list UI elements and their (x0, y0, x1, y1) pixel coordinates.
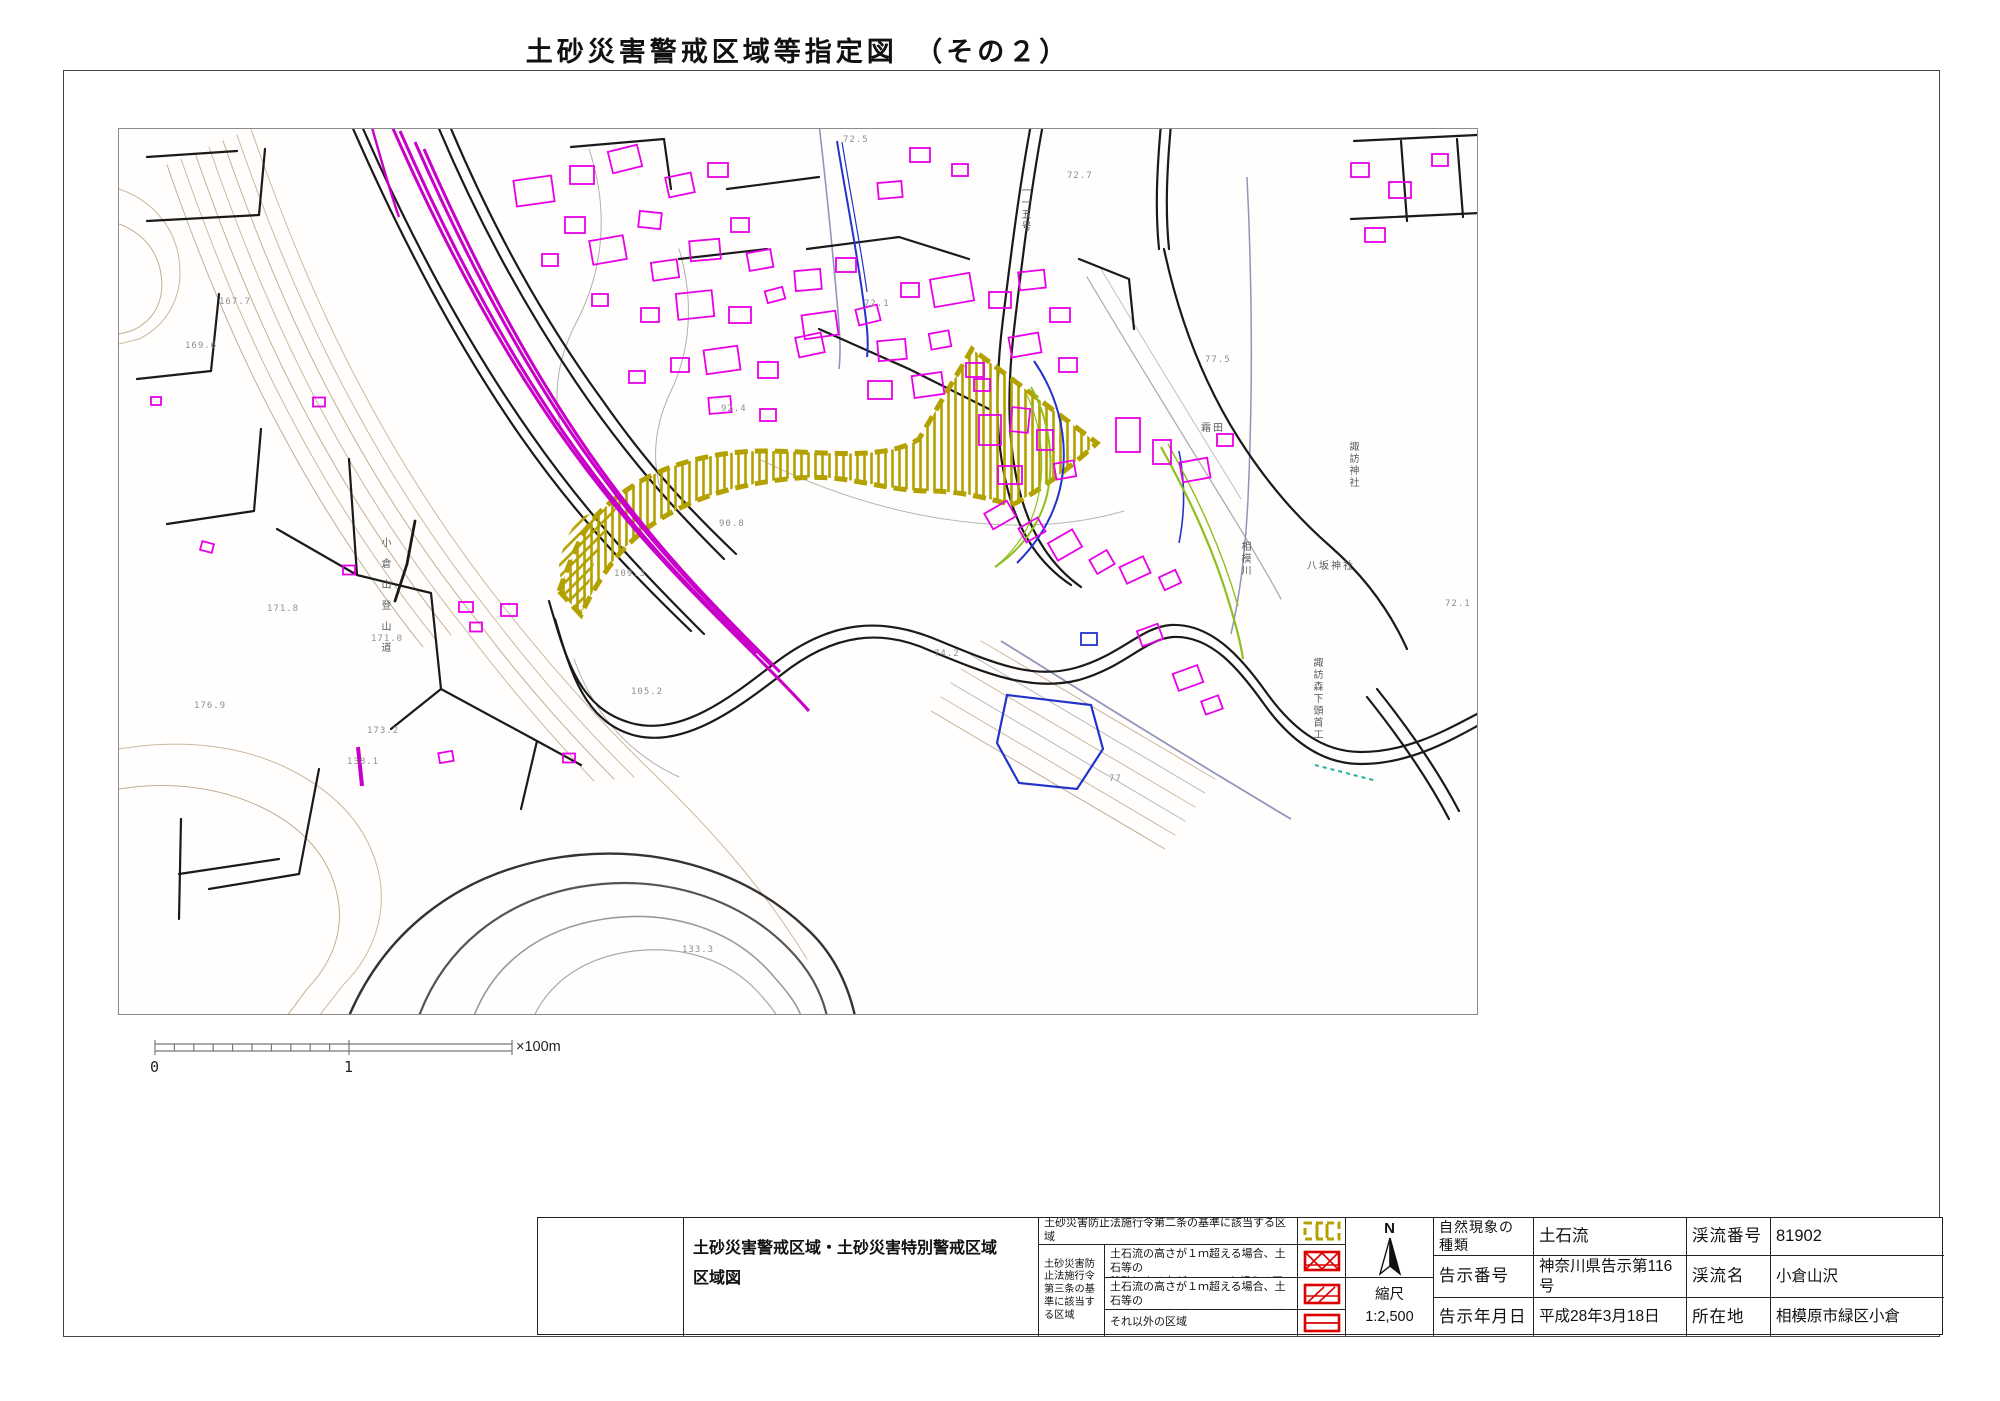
legend-row2-line1: 土石流の高さが１ｍ超える場合、土石等の (1110, 1248, 1292, 1276)
legend-row3-line1: 土石流の高さが１ｍ超える場合、土石等の (1110, 1281, 1292, 1309)
scale-bar: 0 1 ×100m (150, 1036, 630, 1082)
building (1351, 163, 1369, 177)
building (1089, 550, 1114, 574)
building (641, 308, 659, 322)
map-label: 諏訪神社 (1345, 441, 1360, 489)
phenomenon-type-value: 土石流 (1534, 1218, 1687, 1256)
map-doc-title-line2: 区域図 (693, 1264, 1033, 1294)
legend-row4-text: それ以外の区域 (1105, 1310, 1298, 1336)
diagonal-hatch-icon (1302, 1282, 1342, 1306)
building (989, 292, 1011, 308)
special-area-diagonal-swatch (1298, 1278, 1346, 1310)
building (868, 381, 892, 399)
building (570, 166, 594, 184)
map-label: 諏訪森下頭首工 (1309, 657, 1324, 741)
map-label: 105.2 (631, 687, 663, 697)
building (592, 294, 608, 306)
crosshatch-icon (1302, 1249, 1342, 1273)
notice-number-label: 告示番号 (1434, 1256, 1534, 1298)
north-arrow: N (1346, 1218, 1434, 1278)
map-label: 72.1 (864, 299, 890, 309)
map-label: 90.8 (719, 519, 745, 529)
map-doc-title-cell: 土砂災害警戒区域・土砂災害特別警戒区域 区域図 (684, 1218, 1039, 1336)
map-label: 169.6 (185, 341, 217, 351)
building (952, 164, 968, 176)
building (1119, 556, 1150, 583)
building (703, 346, 740, 374)
north-label: N (1384, 1221, 1395, 1236)
map-label: 72.7 (1067, 171, 1093, 181)
legend-group-label: 土砂災害防止法施行令第三条の基準に該当する区域 (1039, 1245, 1105, 1336)
building (910, 148, 930, 162)
notice-date-value: 平成28年3月18日 (1534, 1298, 1687, 1336)
building (151, 397, 161, 405)
map-label: 72.1 (1445, 599, 1471, 609)
building (1217, 434, 1233, 446)
building (1159, 570, 1181, 590)
map-scale-cell: 縮尺 1:2,500 (1346, 1278, 1434, 1336)
building (760, 409, 776, 421)
building (1050, 308, 1070, 322)
contour-lines (119, 129, 1281, 1015)
building (200, 541, 214, 553)
building (651, 259, 679, 280)
building (729, 307, 751, 323)
building (676, 290, 715, 320)
building (629, 371, 645, 383)
stream-name-label: 渓流名 (1687, 1256, 1771, 1298)
scale-one-label: 1 (344, 1058, 353, 1076)
horizontal-line-icon (1302, 1312, 1342, 1334)
scale-unit-label: ×100m (516, 1039, 561, 1055)
building (1179, 458, 1210, 483)
building (1173, 665, 1204, 691)
map-label: 77 (1109, 774, 1122, 784)
legend-row1-text: 土砂災害防止法施行令第二条の基準に該当する区域 (1039, 1218, 1298, 1245)
map-sheet-page: 土砂災害警戒区域等指定図 （その２） (0, 0, 2000, 1401)
special-area-crosshatch-swatch (1298, 1245, 1346, 1278)
location-label: 所在地 (1687, 1298, 1771, 1336)
building (930, 273, 974, 308)
building (671, 358, 689, 372)
road-network (137, 129, 1478, 919)
building (438, 751, 454, 763)
map-label: 176.9 (194, 701, 226, 711)
map-scale-label: 縮尺 (1375, 1285, 1404, 1307)
map-label: 一一五号 (1017, 185, 1032, 233)
map-label: 八坂神社 (1307, 557, 1355, 572)
warning-area-swatch (1298, 1218, 1346, 1245)
building (836, 258, 856, 272)
scale-zero-label: 0 (150, 1058, 159, 1076)
building (731, 218, 749, 232)
map-scale-value: 1:2,500 (1365, 1307, 1413, 1329)
map-label: 171.8 (267, 604, 299, 614)
building (901, 283, 919, 297)
building (1201, 695, 1223, 714)
map-label: 霜田 (1201, 419, 1225, 434)
notice-number-value: 神奈川県告示第116号 (1534, 1256, 1687, 1298)
page-title: 土砂災害警戒区域等指定図 （その２） (118, 30, 1478, 69)
map-label: 109.3 (614, 569, 646, 579)
building (608, 145, 642, 174)
building (513, 175, 554, 206)
hazard-map: 167.7169.6171.8171.0173.2176.9138.1133.3… (118, 128, 1478, 1015)
map-label: 138.1 (347, 757, 379, 767)
map-doc-title-line1: 土砂災害警戒区域・土砂災害特別警戒区域 (693, 1234, 1033, 1264)
building (542, 254, 558, 266)
building (758, 362, 778, 378)
building (1365, 228, 1385, 242)
map-label: 77.5 (1205, 355, 1231, 365)
legend-info-table: 土砂災害警戒区域・土砂災害特別警戒区域 区域図 土砂災害防止法施行令第二条の基準… (537, 1217, 1943, 1335)
legend-row3-text: 土石流の高さが１ｍ超える場合、土石等の 移動による力が50kN/m²以下の区域 (1105, 1278, 1298, 1310)
building (1432, 154, 1448, 166)
building (1059, 358, 1077, 372)
map-label: 72.5 (843, 135, 869, 145)
phenomenon-type-label: 自然現象の種類 (1434, 1218, 1534, 1256)
warning-area-hatch-icon (1302, 1220, 1342, 1242)
building (765, 287, 785, 303)
building (877, 181, 902, 199)
north-arrow-icon (1370, 1236, 1410, 1276)
building (589, 235, 627, 265)
building (565, 217, 585, 233)
map-label: 167.7 (219, 297, 251, 307)
building (638, 211, 662, 229)
blank-cell (538, 1218, 684, 1336)
legend-row2-text: 土石流の高さが１ｍ超える場合、土石等の 移動による力が50kN/m²を超える区域 (1105, 1245, 1298, 1278)
stream-number-value: 81902 (1771, 1218, 1944, 1256)
map-label: 92.4 (721, 404, 747, 414)
building (794, 269, 822, 291)
map-label: 相模川 (1237, 541, 1252, 577)
building (1389, 182, 1411, 198)
building (1048, 529, 1082, 560)
map-label: 小倉山登山道 (377, 537, 392, 663)
building (1018, 270, 1046, 291)
map-label: 133.3 (682, 945, 714, 955)
building (1116, 418, 1140, 452)
stream-number-label: 渓流番号 (1687, 1218, 1771, 1256)
stream-name-value: 小倉山沢 (1771, 1256, 1944, 1298)
building (929, 330, 951, 349)
building (747, 249, 774, 271)
map-label: 173.2 (367, 726, 399, 736)
location-value: 相模原市緑区小倉 (1771, 1298, 1944, 1336)
map-canvas (119, 129, 1478, 1015)
building (708, 163, 728, 177)
notice-date-label: 告示年月日 (1434, 1298, 1534, 1336)
other-area-swatch (1298, 1310, 1346, 1336)
map-label: 74.2 (934, 649, 960, 659)
